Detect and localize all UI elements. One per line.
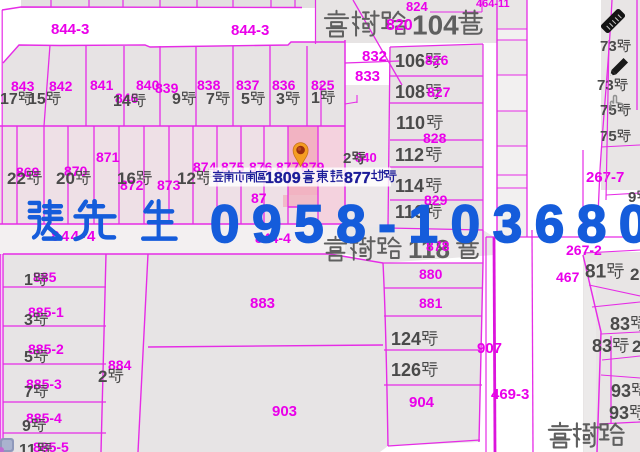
svg-text:114: 114	[395, 176, 424, 196]
svg-text:5: 5	[24, 349, 33, 366]
svg-text:93: 93	[609, 403, 629, 423]
svg-text:2: 2	[630, 265, 639, 284]
svg-text:469-3: 469-3	[491, 386, 529, 403]
svg-text:14: 14	[113, 93, 131, 110]
svg-text:841: 841	[90, 77, 114, 93]
svg-text:7: 7	[206, 91, 215, 108]
svg-text:827: 827	[427, 84, 451, 100]
svg-text:2: 2	[632, 337, 640, 356]
svg-text:108: 108	[395, 82, 425, 102]
svg-text:467: 467	[556, 269, 580, 285]
svg-text:75: 75	[600, 128, 617, 145]
svg-text:15: 15	[28, 91, 46, 108]
svg-text:2: 2	[98, 367, 107, 386]
svg-text:12: 12	[177, 169, 196, 188]
svg-text:124: 124	[391, 329, 421, 349]
svg-text:885-4: 885-4	[26, 410, 62, 426]
svg-text:844-3: 844-3	[51, 21, 89, 38]
svg-text:83: 83	[610, 314, 630, 334]
svg-text:20: 20	[56, 169, 75, 188]
svg-text:833: 833	[355, 68, 380, 85]
svg-text:104: 104	[412, 10, 459, 41]
svg-text:7: 7	[24, 384, 33, 401]
svg-text:267-7: 267-7	[586, 169, 624, 186]
svg-text:93: 93	[611, 381, 631, 401]
svg-text:832: 832	[362, 48, 387, 65]
svg-text:907: 907	[477, 340, 502, 357]
svg-text:883: 883	[250, 295, 275, 312]
svg-text:884: 884	[108, 357, 132, 373]
svg-text:106: 106	[395, 51, 425, 71]
svg-text:2: 2	[343, 150, 351, 167]
svg-text:112: 112	[395, 145, 424, 165]
svg-text:826: 826	[425, 52, 449, 68]
svg-text:22: 22	[7, 169, 26, 188]
svg-text:73: 73	[597, 77, 614, 94]
svg-text:9: 9	[172, 91, 181, 108]
svg-text:17: 17	[0, 91, 18, 108]
svg-text:1: 1	[24, 272, 33, 289]
svg-text:9: 9	[22, 418, 31, 435]
svg-text:3: 3	[24, 312, 33, 329]
svg-text:871: 871	[96, 149, 120, 165]
svg-text:881: 881	[419, 295, 443, 311]
svg-text:904: 904	[409, 394, 435, 411]
svg-text:1809: 1809	[265, 170, 301, 187]
svg-text:1: 1	[311, 90, 320, 107]
svg-text:0958-103680: 0958-103680	[210, 195, 640, 254]
svg-text:880: 880	[419, 266, 443, 282]
svg-text:11: 11	[19, 442, 36, 452]
svg-text:877: 877	[344, 170, 371, 187]
svg-text:828: 828	[423, 130, 447, 146]
svg-text:81: 81	[585, 262, 607, 283]
svg-text:840: 840	[355, 150, 377, 165]
svg-text:844-3: 844-3	[231, 22, 269, 39]
svg-text:464-11: 464-11	[476, 0, 510, 10]
svg-text:16: 16	[117, 169, 136, 188]
svg-text:110: 110	[396, 113, 425, 133]
svg-text:126: 126	[391, 360, 421, 380]
svg-text:842: 842	[49, 78, 73, 94]
svg-text:824: 824	[406, 0, 428, 14]
svg-text:885-2: 885-2	[28, 341, 64, 357]
svg-text:885-1: 885-1	[28, 304, 64, 320]
svg-text:5: 5	[241, 91, 250, 108]
svg-text:903: 903	[272, 403, 297, 420]
svg-text:3: 3	[276, 91, 285, 108]
svg-text:83: 83	[592, 336, 612, 356]
svg-text:820: 820	[386, 17, 413, 34]
